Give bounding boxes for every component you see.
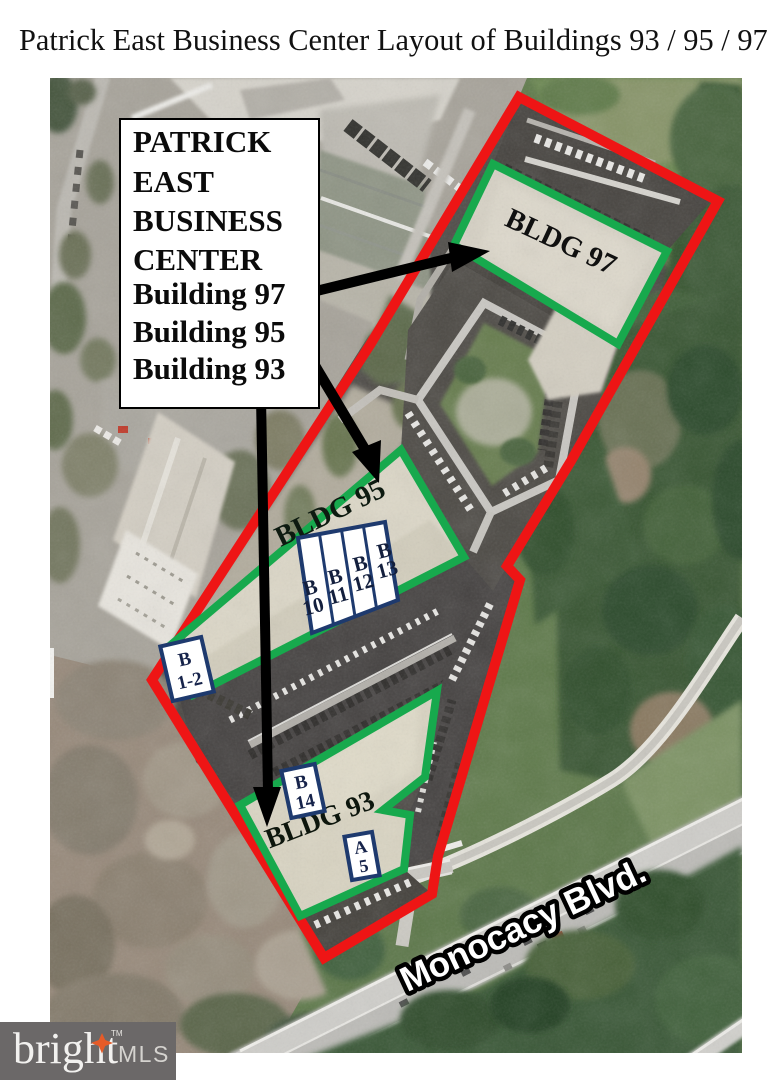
svg-text:Building 93: Building 93 [133,351,286,386]
svg-text:PATRICK: PATRICK [133,124,271,159]
svg-text:Building 97: Building 97 [133,276,286,311]
svg-text:Patrick East Business Center L: Patrick East Business Center Layout of B… [19,23,768,57]
svg-text:Building 95: Building 95 [133,314,286,349]
svg-text:TM: TM [111,1029,123,1038]
svg-text:BUSINESS: BUSINESS [133,203,283,238]
svg-text:CENTER: CENTER [133,242,263,277]
svg-text:EAST: EAST [133,164,214,199]
svg-text:MLS: MLS [118,1041,170,1067]
